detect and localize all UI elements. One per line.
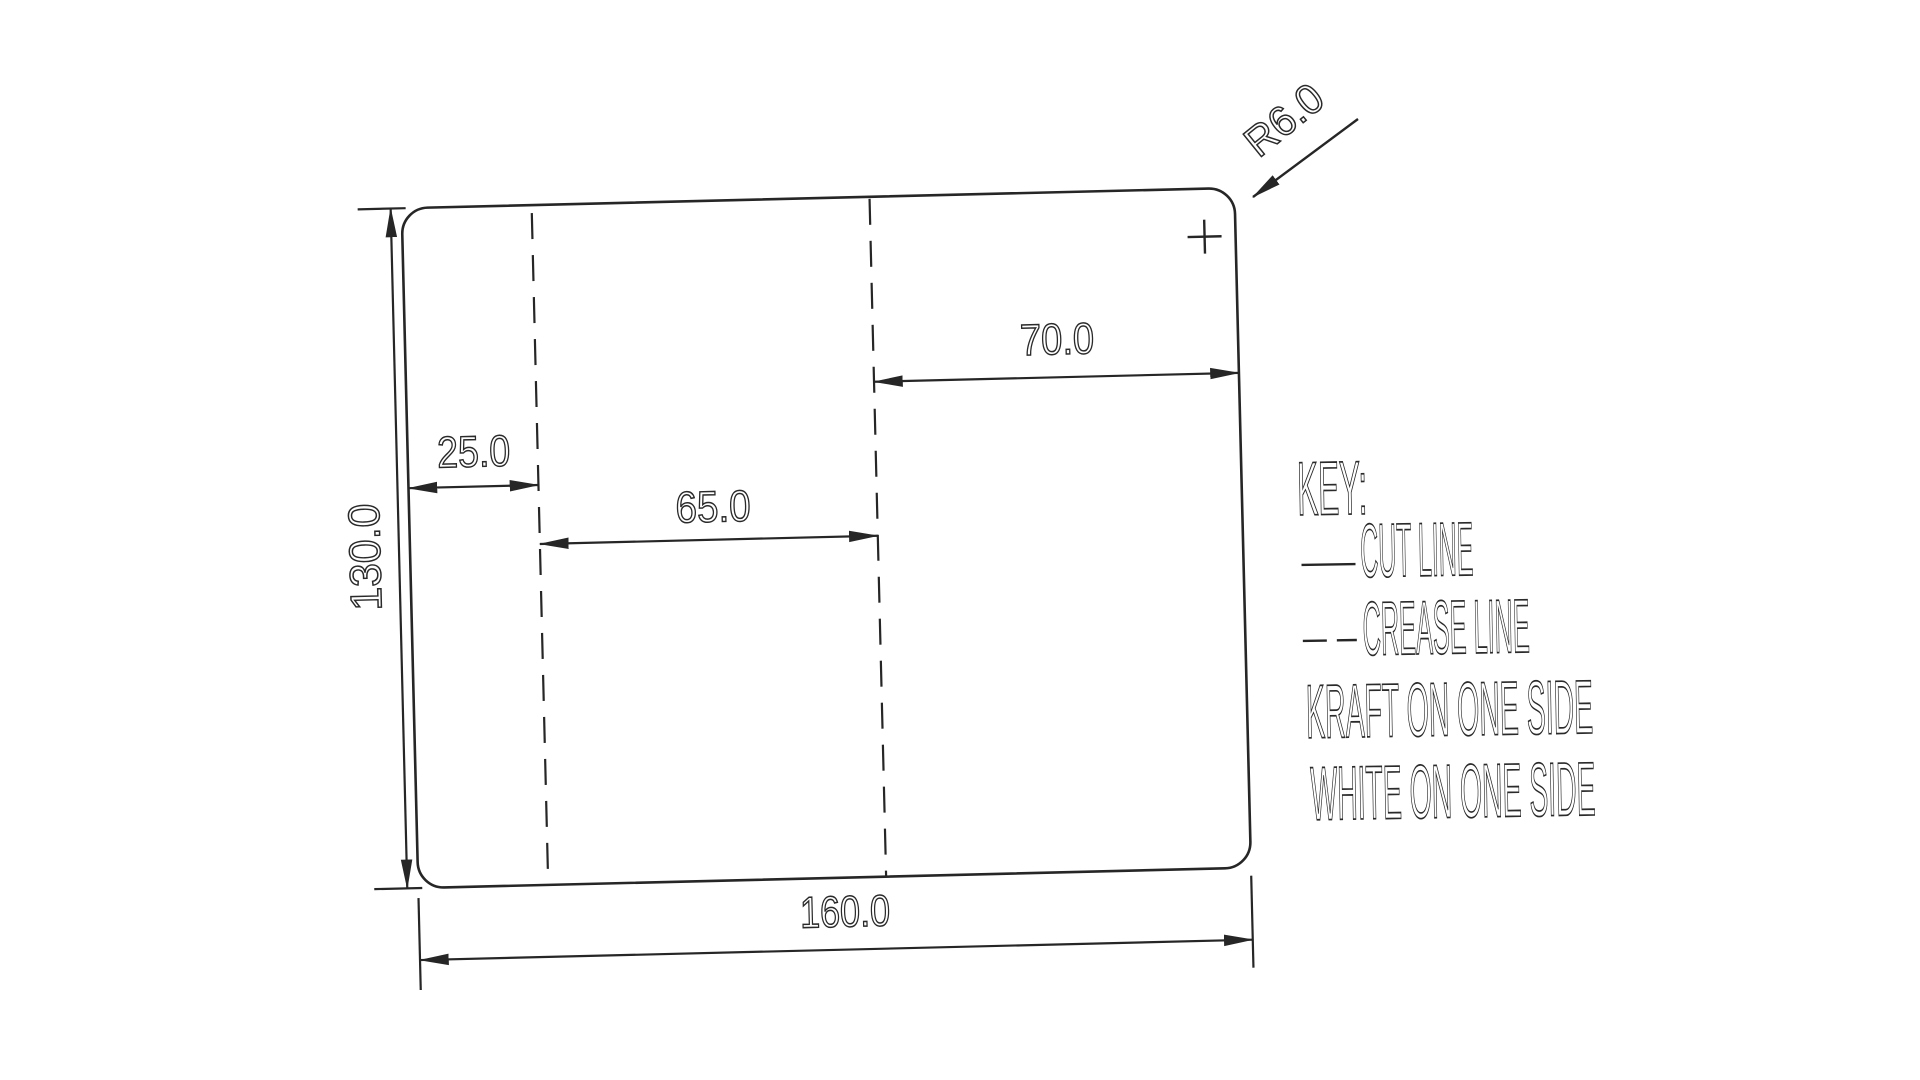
dim-right-panel-label: 70.0	[1019, 314, 1094, 365]
legend: KEY: CUT LINE CREASE LINE KRAFT ON ONE S…	[1296, 442, 1596, 837]
dim-width-ext-left	[419, 898, 421, 990]
radius-label: R6.0	[1235, 74, 1333, 166]
legend-title: KEY:	[1296, 446, 1367, 532]
dim-left-panel-line	[408, 485, 538, 488]
legend-crease-line-label: CREASE LINE	[1362, 584, 1530, 672]
dieline-drawing-canvas: 130.0 25.0 65.0 70.0 160.0 R6.0	[0, 0, 1920, 1080]
dimension-middle-panel: 65.0	[538, 479, 877, 544]
dim-right-panel-line	[874, 373, 1239, 382]
dim-width-line	[420, 940, 1253, 960]
legend-note-kraft: KRAFT ON ONE SIDE	[1305, 665, 1593, 755]
registration-cross-icon	[1187, 219, 1222, 254]
radius-callout: R6.0	[1235, 74, 1358, 197]
legend-cut-line-label: CUT LINE	[1360, 507, 1474, 594]
dim-height-tick-top	[358, 208, 406, 209]
legend-item-crease-line: CREASE LINE	[1302, 584, 1530, 673]
cut-line-sample	[1302, 564, 1356, 565]
dim-height-label: 130.0	[340, 503, 392, 611]
legend-note-white: WHITE ON ONE SIDE	[1310, 747, 1596, 837]
dim-middle-panel-line	[540, 536, 878, 544]
dim-left-panel-label: 25.0	[437, 427, 511, 478]
dim-middle-panel-label: 65.0	[675, 482, 751, 533]
dimension-right-panel: 70.0	[873, 311, 1239, 382]
dimension-left-panel: 25.0	[407, 426, 538, 488]
crease-line-sample	[1303, 640, 1357, 641]
dim-width-label: 160.0	[799, 887, 890, 938]
dieline-group: 130.0 25.0 65.0 70.0 160.0	[333, 188, 1254, 992]
dim-height-tick-bottom	[374, 888, 422, 889]
dim-width-ext-right	[1251, 876, 1253, 968]
dimension-total-width: 160.0	[418, 876, 1253, 990]
